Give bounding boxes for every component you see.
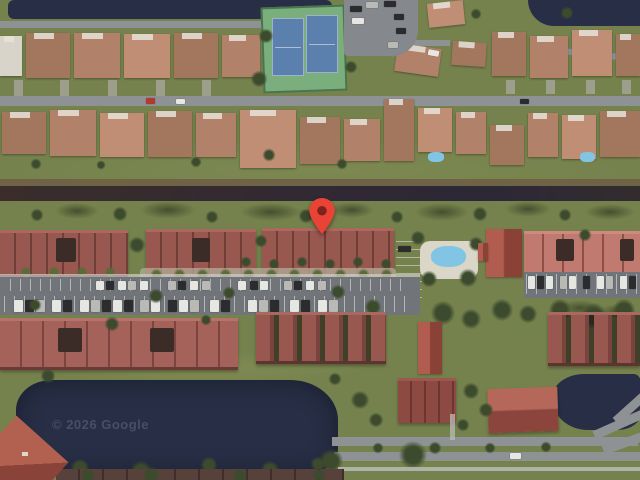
clubhouse-roof [478, 243, 488, 261]
tree [490, 298, 514, 322]
tree [484, 442, 496, 454]
tree [460, 308, 482, 330]
tree [254, 234, 268, 248]
townhouse-roof [398, 378, 456, 423]
clubhouse-roof [486, 229, 522, 277]
tree [330, 284, 346, 300]
car [560, 276, 567, 289]
tree [296, 256, 308, 268]
map-pin-icon[interactable] [309, 198, 335, 234]
car [238, 281, 246, 290]
tennis-court [272, 18, 304, 76]
tree [200, 314, 212, 326]
car [259, 300, 268, 312]
courtyard [556, 239, 574, 261]
tree [368, 412, 384, 428]
house-roof [456, 112, 486, 154]
car [178, 281, 186, 290]
house-roof [600, 111, 640, 157]
driveway [108, 80, 117, 96]
tree [240, 256, 252, 268]
car [52, 300, 61, 312]
car [284, 281, 292, 290]
car [396, 28, 406, 34]
house-roof [418, 108, 452, 152]
street [0, 96, 640, 106]
car [329, 300, 338, 312]
driveway [202, 80, 211, 96]
house-roof [50, 110, 96, 156]
driveway [546, 80, 555, 94]
townhouse-row [56, 469, 344, 480]
house-roof [148, 111, 192, 157]
car [124, 300, 133, 312]
car [606, 276, 613, 289]
house-roof [427, 0, 465, 28]
tree [560, 6, 574, 20]
courtyard [192, 238, 210, 262]
car [388, 42, 398, 48]
tree-shadow [330, 202, 374, 218]
house-roof [124, 34, 170, 78]
car [510, 453, 521, 459]
tree-shadow [240, 203, 302, 221]
satellite-map[interactable]: © 2026 Google [0, 0, 640, 480]
tree [558, 208, 572, 222]
tree [30, 208, 44, 222]
tree [352, 256, 364, 268]
swimming-pool [431, 246, 466, 267]
tree-shadow [140, 201, 196, 219]
car [398, 246, 411, 252]
car [91, 300, 100, 312]
tree [96, 160, 106, 170]
tree [80, 468, 96, 480]
house-roof [451, 41, 487, 67]
tree-shadow [585, 204, 635, 220]
tree [518, 304, 538, 324]
tree [372, 442, 384, 454]
tree [258, 28, 274, 44]
tree-shadow [55, 203, 99, 219]
tree [470, 8, 482, 20]
tree [410, 230, 426, 246]
car [352, 18, 364, 24]
car [583, 276, 590, 289]
tree [336, 158, 348, 170]
car [80, 300, 89, 312]
house-roof [0, 36, 22, 76]
tree [344, 60, 358, 74]
tree-shadow [415, 203, 469, 221]
townhouse-roof [487, 387, 558, 433]
house-roof [528, 113, 558, 157]
car [176, 99, 185, 104]
car [190, 300, 199, 312]
chimney [22, 452, 28, 456]
tree [312, 468, 326, 480]
car [113, 300, 122, 312]
map-pin-hole [317, 206, 327, 216]
tree [30, 158, 42, 170]
tree [462, 382, 480, 400]
canal-bank [0, 179, 640, 186]
car [250, 281, 258, 290]
courtyard [56, 238, 76, 262]
car [168, 300, 177, 312]
tree [104, 316, 120, 332]
tree [262, 148, 276, 162]
car [597, 276, 604, 289]
house-roof [300, 117, 340, 164]
driveway [156, 80, 165, 96]
car [318, 300, 327, 312]
car [179, 300, 188, 312]
tree [458, 268, 478, 288]
car [520, 99, 529, 104]
tree [28, 298, 42, 312]
house-roof [384, 99, 414, 161]
car [102, 300, 111, 312]
house-roof [572, 30, 612, 76]
driveway [506, 80, 515, 94]
tree [222, 286, 236, 300]
backyard-pool [428, 152, 444, 162]
car [221, 300, 230, 312]
townhouse-row [256, 312, 386, 364]
map-pin-balloon [309, 198, 334, 234]
google-watermark: © 2026 Google [52, 417, 149, 432]
tree [128, 236, 146, 254]
car [270, 300, 279, 312]
path [450, 414, 455, 440]
car [168, 281, 176, 290]
tennis-court [306, 15, 338, 73]
sidewalk [338, 467, 640, 471]
tree [232, 468, 248, 480]
driveway [14, 80, 23, 96]
tree [350, 390, 370, 410]
car [318, 281, 326, 290]
car [118, 281, 126, 290]
tree [112, 206, 128, 222]
house-roof [26, 33, 70, 78]
tree [205, 210, 219, 224]
driveway [622, 80, 631, 94]
backyard-pool [580, 152, 595, 162]
car [202, 281, 210, 290]
car [629, 276, 636, 289]
courtyard [150, 328, 174, 352]
house-roof [196, 113, 236, 157]
tree [456, 418, 470, 432]
driveway [60, 80, 69, 96]
tree [328, 372, 342, 386]
car [546, 276, 553, 289]
house-roof [74, 33, 120, 78]
courtyard [620, 239, 634, 261]
car [366, 2, 378, 8]
house-roof [490, 125, 524, 165]
house-roof [492, 32, 526, 76]
townhouse-roof [418, 322, 442, 374]
tree [250, 70, 268, 88]
car [394, 14, 404, 20]
car [537, 276, 544, 289]
tree [148, 288, 164, 304]
car [384, 1, 396, 7]
car [210, 300, 219, 312]
house-roof [174, 33, 218, 78]
tree [190, 156, 202, 168]
tree [472, 206, 488, 222]
car [128, 281, 136, 290]
car [96, 281, 104, 290]
car [294, 281, 302, 290]
house-roof [530, 36, 568, 78]
parking-stalls [10, 279, 410, 291]
pond-top-right [528, 0, 640, 26]
tree [540, 441, 552, 453]
car [63, 300, 72, 312]
car [569, 276, 576, 289]
tree [40, 368, 56, 384]
car [106, 281, 114, 290]
house-roof [2, 112, 46, 154]
car [146, 98, 155, 104]
tree-shadow [505, 201, 551, 217]
car [140, 281, 148, 290]
tree [578, 228, 592, 242]
car [301, 300, 310, 312]
tree [420, 270, 438, 288]
car [190, 281, 198, 290]
driveway [586, 80, 595, 94]
tree [398, 440, 428, 470]
courtyard [58, 328, 82, 352]
car [528, 276, 535, 289]
car [290, 300, 299, 312]
tree [142, 466, 160, 480]
car [248, 300, 257, 312]
house-roof [344, 119, 380, 161]
car [620, 276, 627, 289]
house-roof [100, 113, 144, 157]
car [306, 281, 314, 290]
car [14, 300, 23, 312]
tree [478, 402, 494, 418]
townhouse-row [548, 312, 640, 366]
car [260, 281, 268, 290]
house-roof [616, 34, 640, 76]
car [350, 6, 362, 12]
tree [428, 441, 442, 455]
tree [390, 210, 404, 224]
